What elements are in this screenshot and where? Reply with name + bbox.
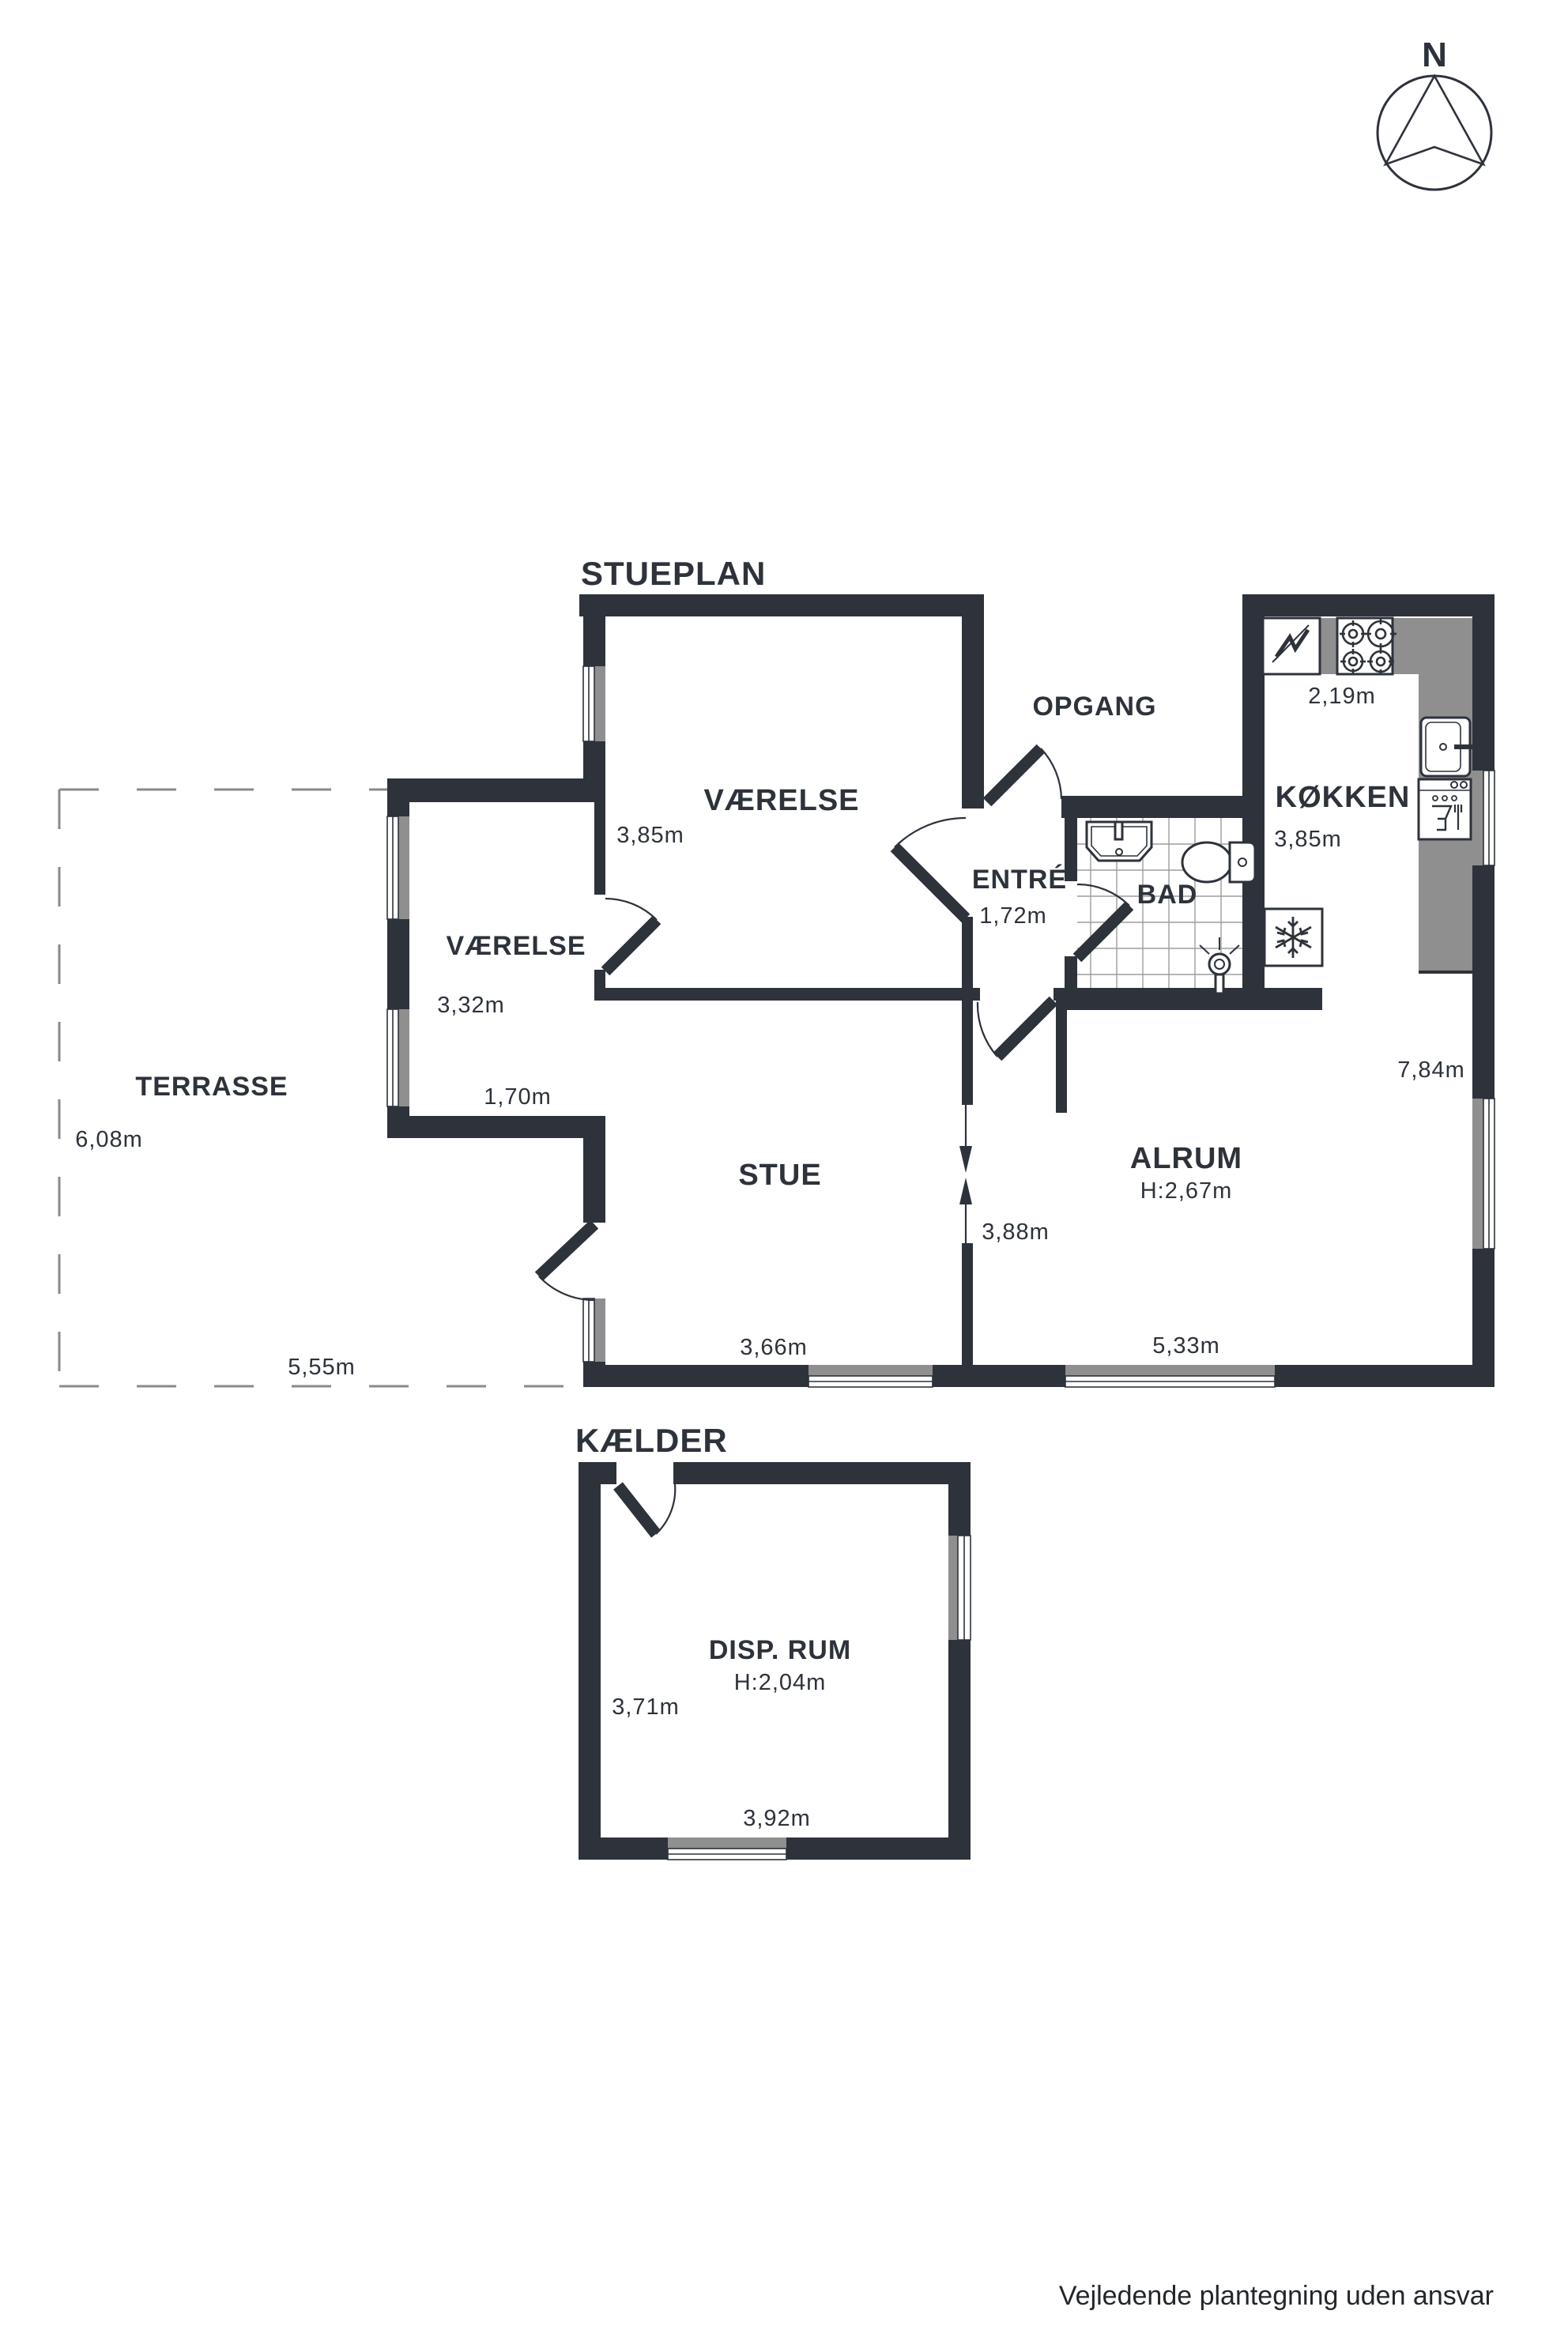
north-arrow-icon: N xyxy=(1378,36,1491,190)
dim-koekken-depth: 3,85m xyxy=(1274,827,1342,852)
dim-terrasse-depth: 6,08m xyxy=(75,1127,143,1152)
bath-sink-icon xyxy=(1087,822,1151,861)
room-label-vaerelse-top: VÆRELSE xyxy=(703,784,859,817)
dim-terrasse-width: 5,55m xyxy=(288,1355,356,1380)
toilet-icon xyxy=(1182,842,1255,882)
room-label-terrasse: TERRASSE xyxy=(135,1072,288,1102)
room-label-bad: BAD xyxy=(1137,880,1198,910)
dim-alrum-side: 7,84m xyxy=(1397,1057,1465,1083)
room-label-stue: STUE xyxy=(738,1159,821,1192)
dim-stue-width: 3,66m xyxy=(740,1335,808,1360)
terrace-door xyxy=(539,1224,594,1300)
room-label-opgang: OPGANG xyxy=(1032,692,1156,722)
dim-disp-depth: 3,71m xyxy=(612,1694,680,1720)
dim-alrum-height: H:2,67m xyxy=(1140,1178,1233,1204)
entrance-door xyxy=(987,748,1061,802)
room-label-vaerelse-annex: VÆRELSE xyxy=(446,931,586,961)
floorplan-page: N STUEPLAN KÆLDER xyxy=(0,0,1568,2352)
dim-alrum-width: 5,33m xyxy=(1152,1333,1220,1359)
dim-disp-height: H:2,04m xyxy=(734,1670,827,1695)
floor-title: STUEPLAN xyxy=(581,555,766,592)
room-label-entre: ENTRÉ xyxy=(972,865,1067,895)
freezer-icon xyxy=(1265,909,1322,966)
dim-koekken-width: 2,19m xyxy=(1308,684,1376,709)
basement-title: KÆLDER xyxy=(575,1422,728,1459)
bedroom-door xyxy=(895,818,966,918)
stove-icon xyxy=(1337,618,1396,675)
dim-vaerelse-top: 3,85m xyxy=(616,823,684,848)
electric-meter-icon xyxy=(1263,618,1320,674)
north-label: N xyxy=(1422,36,1447,74)
room-label-disp-rum: DISP. RUM xyxy=(709,1635,851,1665)
basement-door xyxy=(618,1484,675,1534)
dim-annex-width: 1,70m xyxy=(484,1084,552,1110)
hall-door xyxy=(978,1001,1053,1057)
opening-marker xyxy=(959,1105,972,1243)
disclaimer-text: Vejledende plantegning uden ansvar xyxy=(1059,2281,1494,2311)
room-label-koekken: KØKKEN xyxy=(1276,781,1411,814)
dim-annex-depth: 3,32m xyxy=(437,993,505,1018)
dim-entre: 1,72m xyxy=(979,903,1047,929)
floorplan-drawing: N STUEPLAN KÆLDER xyxy=(0,0,1568,2352)
dim-alrum-opening: 3,88m xyxy=(982,1219,1050,1245)
dim-disp-width: 3,92m xyxy=(743,1806,811,1831)
room-label-alrum: ALRUM xyxy=(1130,1142,1242,1175)
dishwasher-icon xyxy=(1419,779,1471,839)
kitchen-sink-icon xyxy=(1421,718,1479,776)
annex-door xyxy=(605,899,657,971)
